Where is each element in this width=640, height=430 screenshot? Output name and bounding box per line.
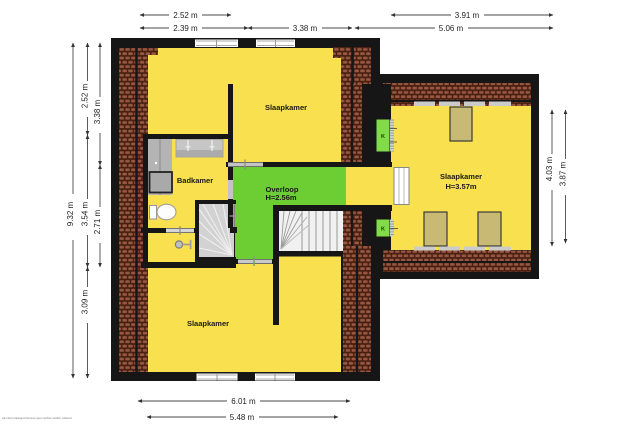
svg-text:2.52 m: 2.52 m [173,11,198,20]
svg-text:5.06 m: 5.06 m [439,24,464,33]
svg-text:2.39 m: 2.39 m [173,24,198,33]
svg-text:6.01 m: 6.01 m [231,397,256,406]
svg-text:4.03 m: 4.03 m [545,156,554,181]
svg-text:3.91 m: 3.91 m [455,11,480,20]
svg-text:2.52 m: 2.52 m [81,83,90,108]
svg-text:K: K [381,227,385,233]
svg-text:9.32 m: 9.32 m [66,201,75,226]
svg-text:K: K [381,134,385,140]
svg-text:Badkamer: Badkamer [177,176,213,185]
svg-text:3.87 m: 3.87 m [559,161,568,186]
svg-text:3.09 m: 3.09 m [81,289,90,314]
svg-text:H=2.56m: H=2.56m [265,193,296,202]
svg-text:3.38 m: 3.38 m [293,24,318,33]
svg-text:3.54 m: 3.54 m [81,201,90,226]
svg-text:Slaapkamer: Slaapkamer [265,103,307,112]
svg-text:Slaapkamer: Slaapkamer [440,172,482,181]
svg-text:Aan deze plattegrond kunnen ge: Aan deze plattegrond kunnen geen rechten… [2,416,72,420]
svg-text:H=3.57m: H=3.57m [445,182,476,191]
svg-text:Slaapkamer: Slaapkamer [187,319,229,328]
svg-text:3.38 m: 3.38 m [93,99,102,124]
svg-text:2.71 m: 2.71 m [93,209,102,234]
svg-text:5.48 m: 5.48 m [230,413,255,422]
